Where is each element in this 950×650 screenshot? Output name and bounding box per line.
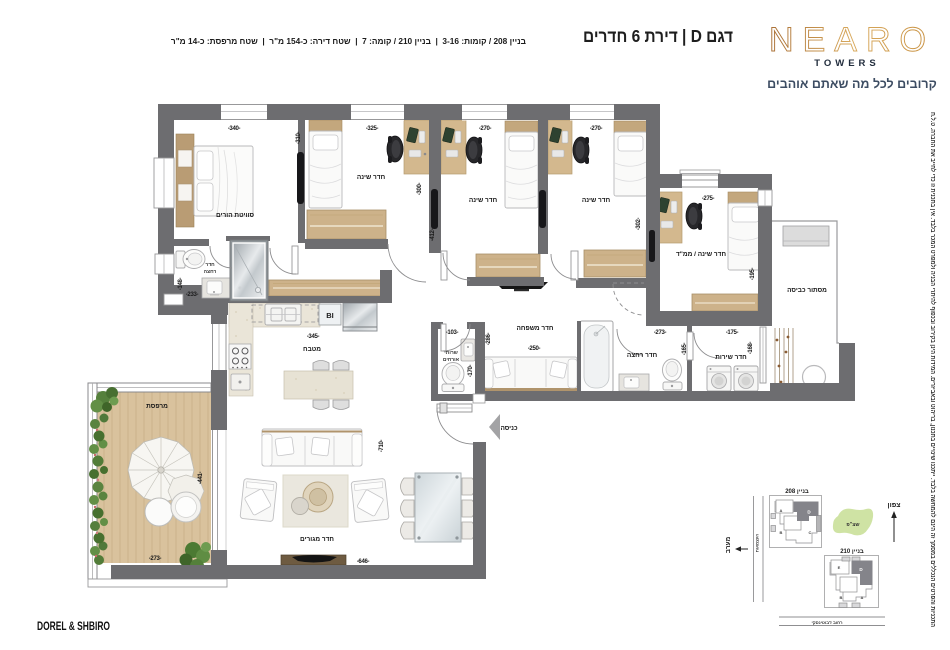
svg-text:-175-: -175- [726, 330, 739, 336]
svg-text:C: C [809, 530, 812, 535]
svg-text:-270-: -270- [479, 126, 492, 132]
svg-text:בניין 208: בניין 208 [785, 489, 809, 495]
svg-text:-270-: -270- [590, 126, 603, 132]
svg-text:-275-: -275- [702, 196, 715, 202]
svg-text:-310-: -310- [296, 131, 302, 144]
svg-text:-286-: -286- [486, 332, 492, 345]
svg-text:TOWERS: TOWERS [814, 58, 880, 69]
svg-text:A: A [780, 508, 783, 513]
svg-text:A: A [861, 595, 864, 600]
svg-text:רחוב ז'בוטינסקי: רחוב ז'בוטינסקי [811, 620, 843, 625]
svg-text:מטבח: מטבח [303, 346, 321, 353]
svg-text:דגם D | דירת 6 חדרים: דגם D | דירת 6 חדרים [583, 26, 733, 46]
svg-text:-170-: -170- [468, 364, 474, 377]
svg-text:חדר שינה: חדר שינה [357, 174, 386, 181]
svg-text:-195-: -195- [750, 267, 756, 280]
svg-text:התכניות והפרטים הנכללים במסמך: התכניות והפרטים הנכללים במסמך זה הינם לה… [929, 112, 937, 627]
svg-text:-441-: -441- [198, 471, 204, 484]
svg-text:NEARO: NEARO [769, 21, 935, 59]
svg-text:-233-: -233- [186, 292, 199, 298]
svg-text:מערב: מערב [725, 537, 732, 554]
svg-text:כניסה: כניסה [500, 425, 518, 432]
svg-text:העצמאות: העצמאות [755, 534, 760, 552]
svg-text:-168-: -168- [748, 341, 754, 354]
svg-text:חדר שירות: חדר שירות [715, 354, 747, 361]
svg-text:חדר רחצה: חדר רחצה [627, 352, 658, 359]
svg-text:חדר מגורים: חדר מגורים [300, 536, 334, 543]
svg-text:-325-: -325- [366, 126, 379, 132]
svg-text:-302-: -302- [636, 217, 642, 230]
svg-text:-340-: -340- [228, 126, 241, 132]
svg-text:B: B [780, 530, 783, 535]
svg-text:בניין 210: בניין 210 [840, 549, 864, 555]
svg-text:E: E [838, 565, 841, 570]
svg-text:אורחים: אורחים [443, 357, 460, 363]
svg-text:שצ"פ: שצ"פ [846, 522, 859, 528]
svg-text:-103-: -103- [446, 330, 459, 336]
svg-text:רחצה: רחצה [204, 269, 217, 275]
svg-text:צפון: צפון [887, 502, 900, 509]
svg-text:-412-: -412- [430, 228, 436, 241]
svg-text:סוויטת הורים: סוויטת הורים [216, 212, 254, 219]
svg-text:חדר שינה: חדר שינה [582, 197, 611, 204]
svg-text:חדר שינה / ממ"ד: חדר שינה / ממ"ד [676, 251, 726, 258]
svg-text:חדר שינה: חדר שינה [469, 197, 498, 204]
svg-text:חדר משפחה: חדר משפחה [517, 325, 554, 332]
svg-text:-345-: -345- [307, 334, 320, 340]
svg-text:DOREL & SHBIRO: DOREL & SHBIRO [37, 621, 110, 633]
svg-text:B: B [840, 595, 843, 600]
svg-text:BI: BI [326, 311, 334, 320]
svg-text:מסתור כביסה: מסתור כביסה [787, 287, 827, 294]
svg-text:-710-: -710- [379, 439, 385, 452]
svg-text:-148-: -148- [178, 277, 184, 290]
svg-text:-646-: -646- [357, 559, 370, 565]
svg-text:-165-: -165- [682, 342, 688, 355]
svg-text:-300-: -300- [417, 182, 423, 195]
svg-text:-273-: -273- [654, 330, 667, 336]
svg-text:חדר: חדר [205, 262, 215, 268]
svg-text:קרובים לכל מה שאתם אוהבים: קרובים לכל מה שאתם אוהבים [767, 77, 937, 91]
svg-text:בניין 208 / קומות: 3-16 | בנ: בניין 208 / קומות: 3-16 | בניין 210 / קו… [171, 36, 527, 46]
svg-text:מרפסת: מרפסת [146, 403, 168, 410]
svg-text:-273-: -273- [149, 556, 162, 562]
svg-text:שרותי: שרותי [444, 350, 458, 356]
svg-text:-250-: -250- [528, 346, 541, 352]
